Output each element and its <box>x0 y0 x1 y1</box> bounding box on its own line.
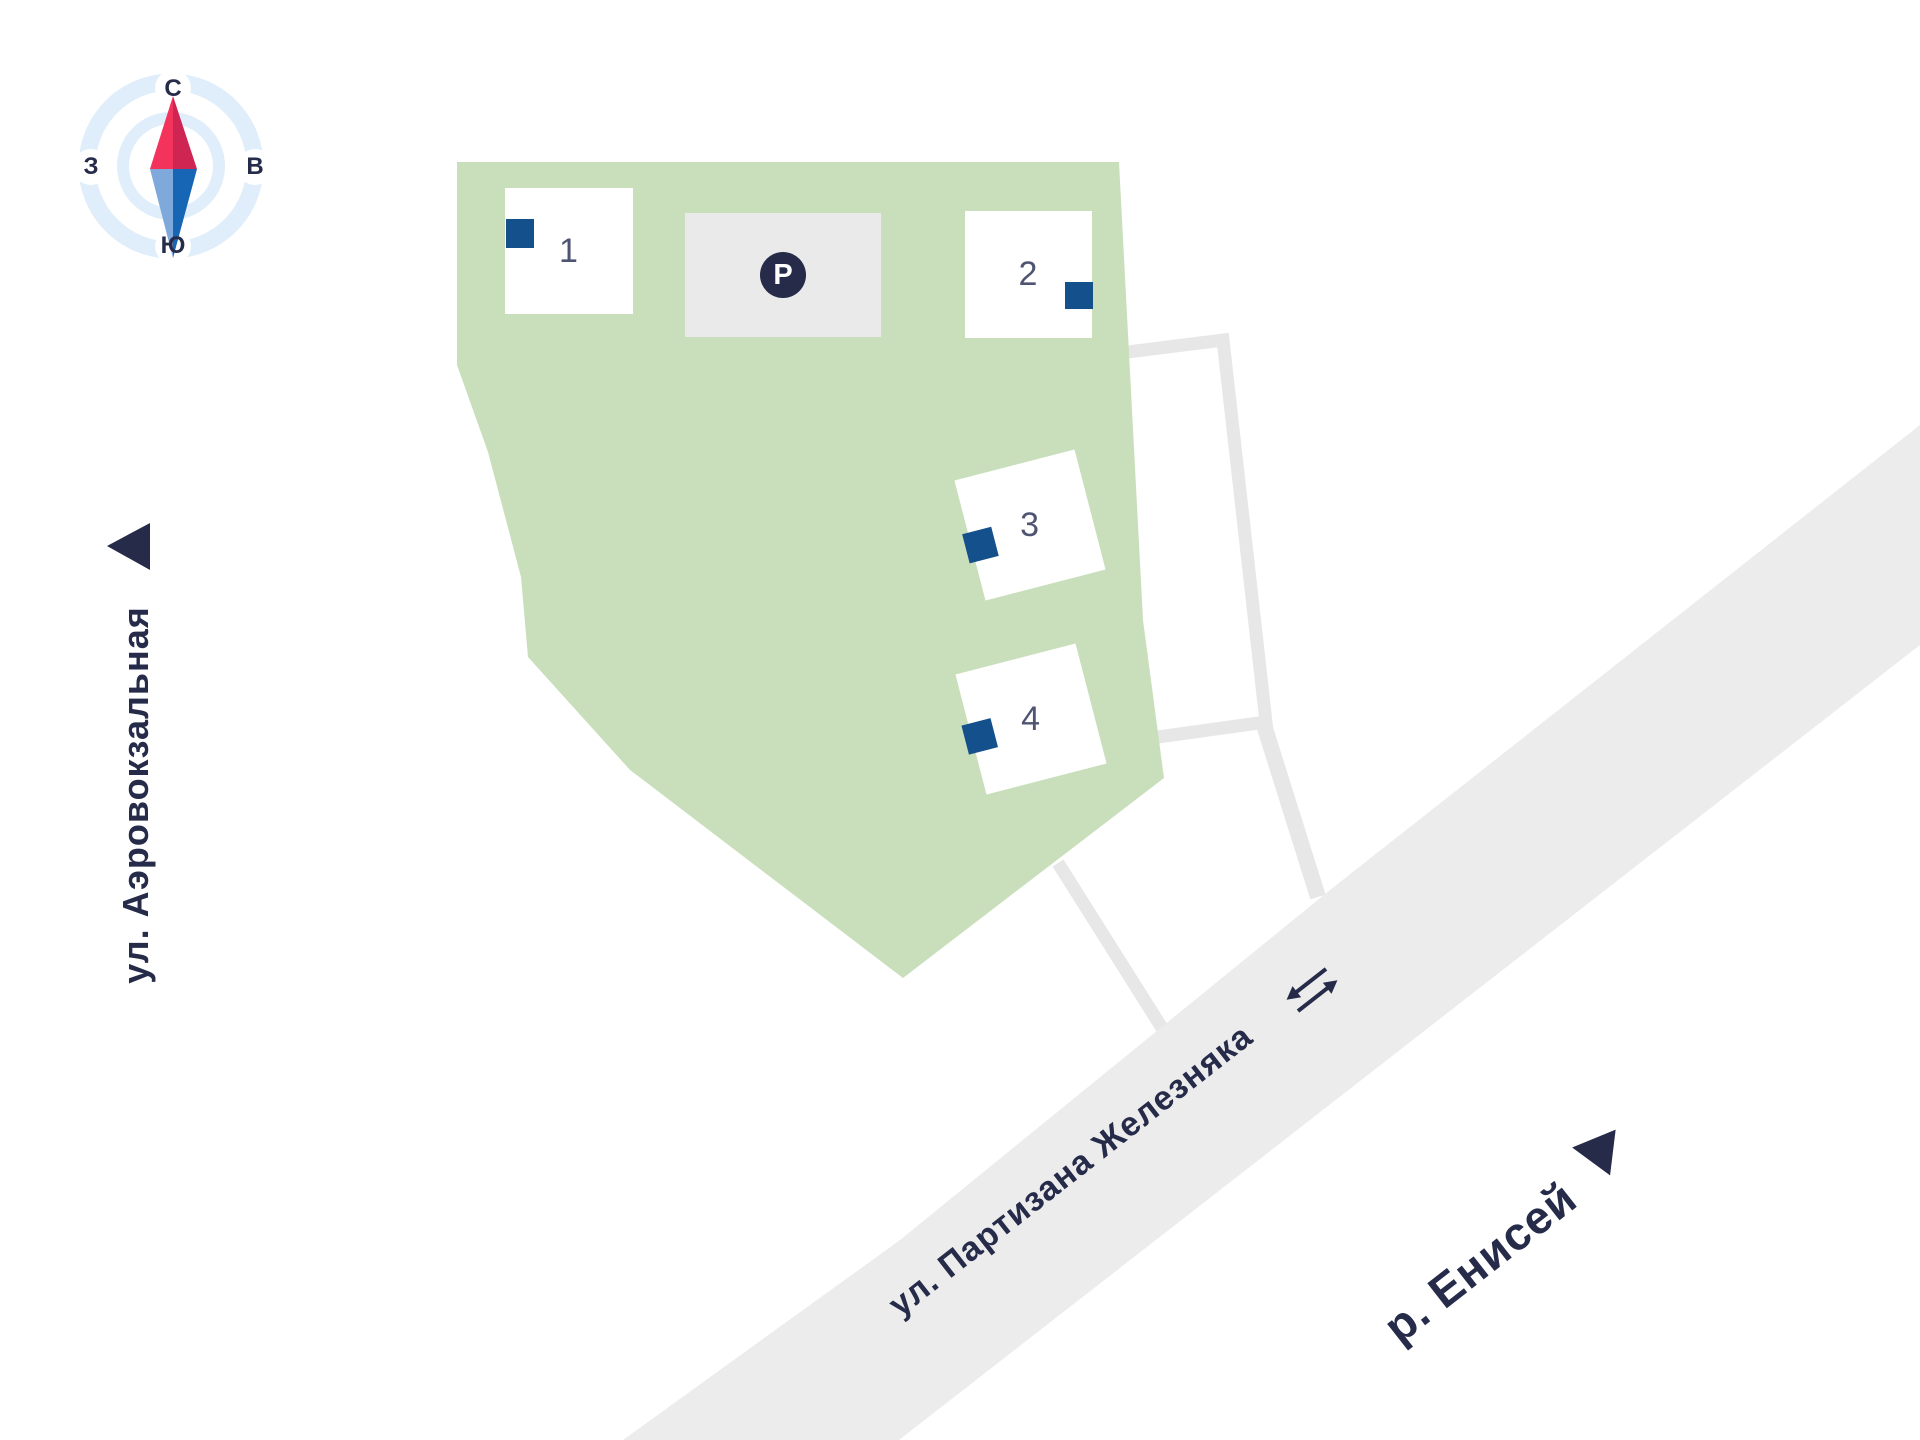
building-2-entrance-marker <box>1065 282 1093 309</box>
river-direction-triangle-icon <box>1569 1125 1615 1176</box>
building-1-number: 1 <box>559 232 579 271</box>
street-label-aerovokzalnaya: ул. Аэровокзальная <box>115 606 157 984</box>
compass-east-label: В <box>246 153 263 181</box>
building-1[interactable]: 1 <box>505 188 633 314</box>
building-2[interactable]: 2 <box>965 211 1092 338</box>
compass-west-label: З <box>83 153 98 181</box>
building-2-number: 2 <box>1019 255 1039 294</box>
building-3-number: 3 <box>1020 506 1040 545</box>
building-4-number: 4 <box>1021 700 1041 739</box>
building-4-entrance-marker <box>961 718 998 755</box>
street-direction-triangle-icon <box>107 523 150 570</box>
parcel-divider-line <box>1058 863 1162 1028</box>
building-1-entrance-marker <box>506 219 534 248</box>
building-3-entrance-marker <box>962 527 999 564</box>
road-connector-line <box>1263 722 1318 897</box>
compass-south-label: Ю <box>161 232 186 260</box>
parking-area: P <box>685 213 881 337</box>
compass-rose: С Ю З В <box>51 46 291 286</box>
compass-north-label: С <box>164 75 181 103</box>
site-plan-map: P 1 2 3 4 С Ю З В <box>0 0 1920 1440</box>
parking-icon: P <box>760 252 806 298</box>
